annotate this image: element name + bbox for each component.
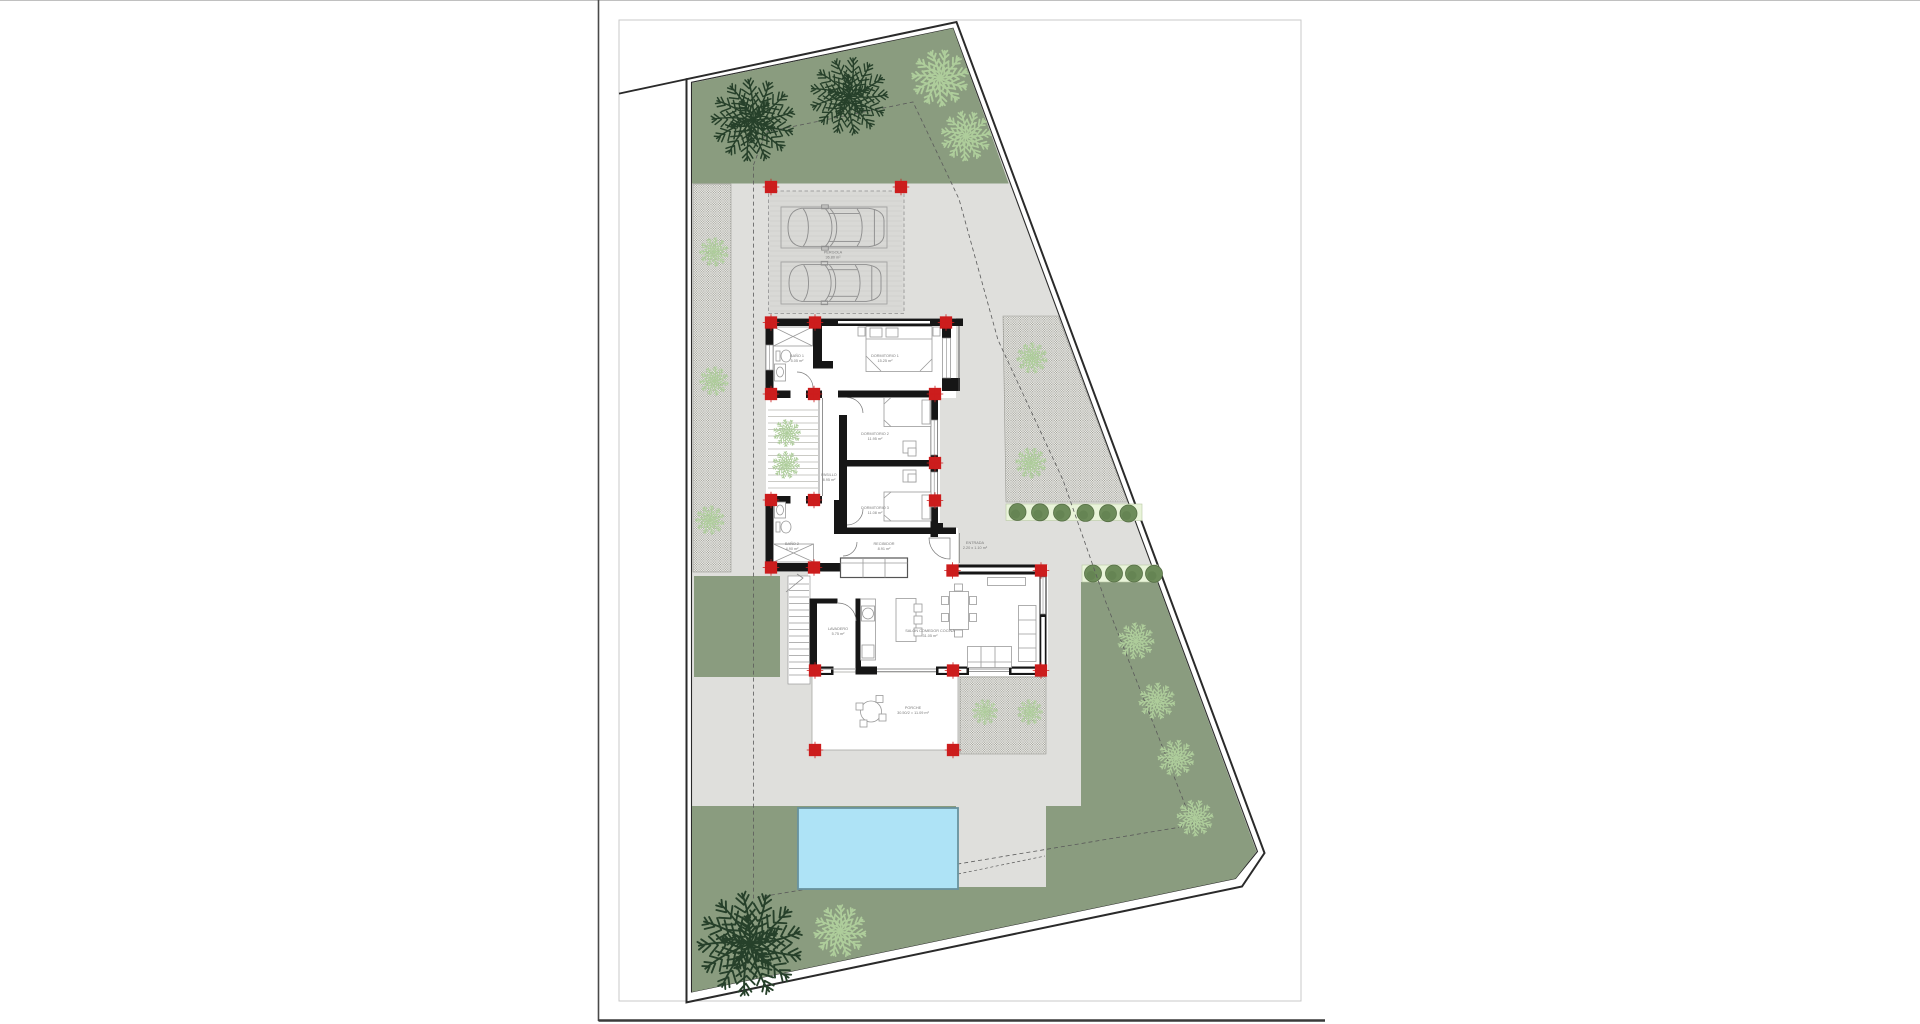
svg-text:PORCHE: PORCHE [905, 706, 922, 710]
svg-text:5.75 m²: 5.75 m² [832, 632, 846, 636]
svg-text:36.80 m²: 36.80 m² [826, 256, 842, 260]
svg-text:8.91 m²: 8.91 m² [878, 547, 892, 551]
svg-text:8.95 m²: 8.95 m² [823, 478, 837, 482]
svg-text:SALON COMEDOR COCINA: SALON COMEDOR COCINA [905, 629, 955, 633]
svg-text:DORMITORIO 1: DORMITORIO 1 [871, 354, 899, 358]
svg-text:5.05 m²: 5.05 m² [791, 359, 805, 363]
svg-text:DORMITORIO 3: DORMITORIO 3 [861, 506, 889, 510]
svg-text:30.50/2 = 11.09 m²: 30.50/2 = 11.09 m² [897, 711, 929, 715]
svg-text:31.05 m²: 31.05 m² [923, 634, 939, 638]
svg-text:4.90 m²: 4.90 m² [786, 547, 800, 551]
svg-text:PASILLO: PASILLO [821, 473, 837, 477]
svg-text:LAVADERO: LAVADERO [828, 627, 848, 631]
svg-text:BAÑO 2: BAÑO 2 [785, 541, 799, 546]
svg-text:2.20 x 1.10 m²: 2.20 x 1.10 m² [963, 546, 988, 550]
svg-text:RECIBIDOR: RECIBIDOR [873, 542, 894, 546]
svg-text:BAÑO 1: BAÑO 1 [790, 353, 804, 358]
svg-text:ENTRADA: ENTRADA [966, 541, 985, 545]
svg-text:11.08 m²: 11.08 m² [868, 511, 883, 515]
svg-text:PERGOLA: PERGOLA [824, 251, 843, 255]
svg-text:11.95 m²: 11.95 m² [868, 437, 883, 441]
svg-text:DORMITORIO 2: DORMITORIO 2 [861, 432, 889, 436]
svg-text:15.25 m²: 15.25 m² [878, 359, 894, 363]
